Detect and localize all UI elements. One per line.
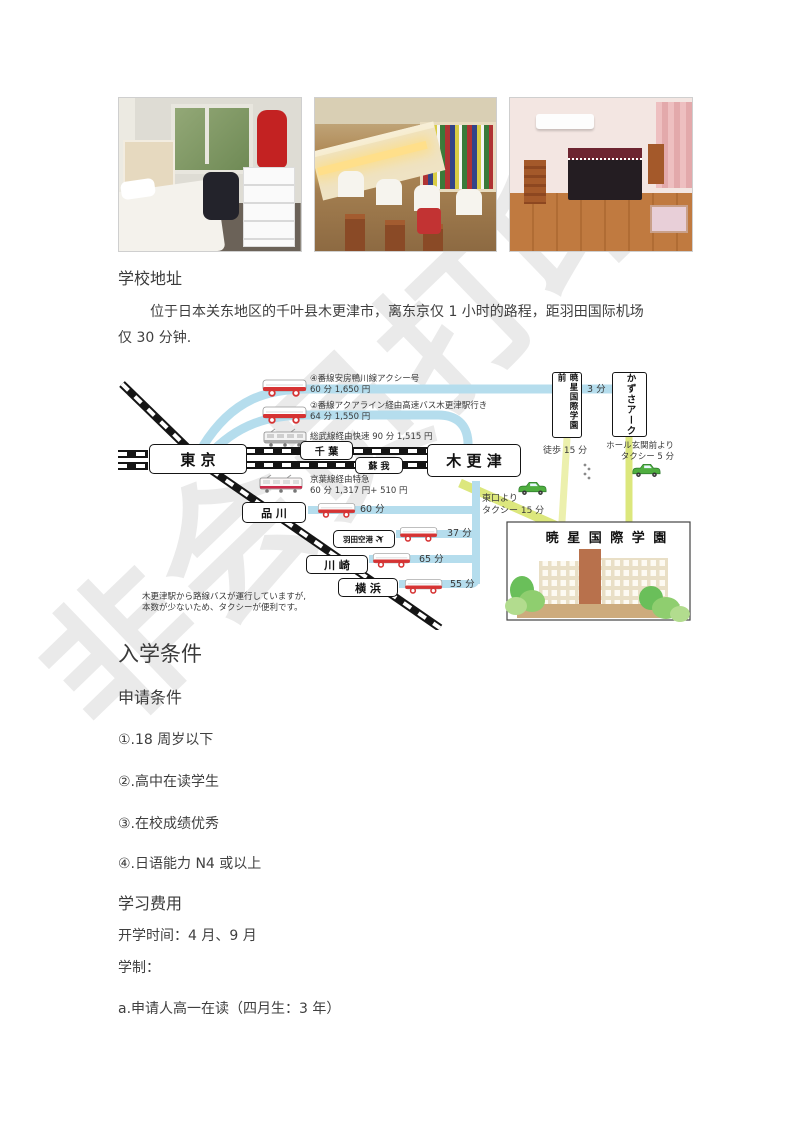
station-kisarazu: 木 更 津 (427, 444, 521, 477)
time-kawasaki: 65 分 (419, 551, 444, 565)
time-yokohama: 55 分 (450, 576, 475, 590)
bus-stop-gyosei-mae: 暁星国際学園前 (552, 372, 582, 438)
bus-icon (373, 554, 410, 567)
route-label-keiyo: 京葉線経由特急 60 分 1,317 円+ 510 円 (310, 475, 408, 497)
school-box-title: 暁 星 国 際 学 園 (532, 527, 682, 546)
station-tokyo: 東 京 (149, 444, 247, 474)
route-label-sobu: 総武線経由快速 90 分 1,515 円 (310, 432, 432, 443)
photo-dorm-room (118, 97, 302, 252)
map-note: 木更津駅から路線バスが運行していますが, 本数が少ないため、タクシーが便利です。 (142, 592, 306, 614)
route-label-aqualine: ②番線アクアライン経由高速バス木更津駅行き 64 分 1,550 円 (310, 401, 487, 423)
apply-subheading: 申请条件 (118, 688, 182, 709)
time-shinagawa: 60 分 (360, 501, 385, 515)
address-heading: 学校地址 (118, 269, 182, 290)
document-page: 非会员打印 (0, 0, 793, 1122)
station-chiba: 千 葉 (300, 441, 353, 460)
bus-icon (400, 528, 437, 541)
station-shinagawa: 品 川 (242, 502, 306, 523)
address-line-2: 仅 30 分钟. (118, 329, 680, 347)
bus-icon (318, 504, 355, 517)
airplane-icon: ✈ (372, 530, 388, 547)
train-icon (260, 475, 302, 493)
station-soga: 蘇 我 (355, 457, 403, 474)
fees-heading: 学习费用 (118, 894, 182, 915)
admission-item: ①.18 周岁以下 (118, 731, 213, 749)
fees-school-system: 学制： (118, 959, 160, 977)
walking-dots-icon (584, 464, 591, 480)
fees-item-a: a.申请人高一在读（四月生：3 年） (118, 1000, 340, 1018)
walk-label: 徒歩 15 分 (543, 446, 587, 458)
admission-item: ②.高中在读学生 (118, 773, 219, 791)
station-kawasaki: 川 崎 (306, 555, 368, 574)
admission-heading: 入学条件 (118, 641, 202, 668)
bus-icon (405, 580, 442, 593)
admission-item: ③.在校成绩优秀 (118, 815, 219, 833)
route-label-akushi: ④番線安房鴨川線アクシー号 60 分 1,650 円 (310, 374, 419, 396)
time-haneda: 37 分 (447, 525, 472, 539)
bus-stop-kazusa-ark: かずさアーク (612, 372, 647, 437)
fees-start-time: 开学时间：4 月、9 月 (118, 927, 257, 945)
east-exit-taxi-label: 東口より タクシー 15 分 (482, 494, 544, 517)
station-yokohama: 横 浜 (338, 578, 398, 597)
admission-item: ④.日语能力 N4 或以上 (118, 855, 261, 873)
photo-row (118, 97, 693, 252)
time-3min: 3 分 (587, 381, 606, 395)
photo-study-hall (314, 97, 498, 252)
access-map: 東 京 千 葉 蘇 我 木 更 津 品 川 羽田空港 ✈ 川 崎 横 浜 暁星国… (118, 368, 693, 630)
photo-parlor-room (509, 97, 693, 252)
taxi-icon (633, 464, 660, 477)
station-haneda-airport: 羽田空港 ✈ (333, 530, 395, 548)
address-line-1: 位于日本关东地区的千叶县木更津市，离东京仅 1 小时的路程，距羽田国际机场 (118, 303, 680, 321)
hall-taxi-label: ホール玄関前より タクシー 5 分 (586, 441, 674, 463)
